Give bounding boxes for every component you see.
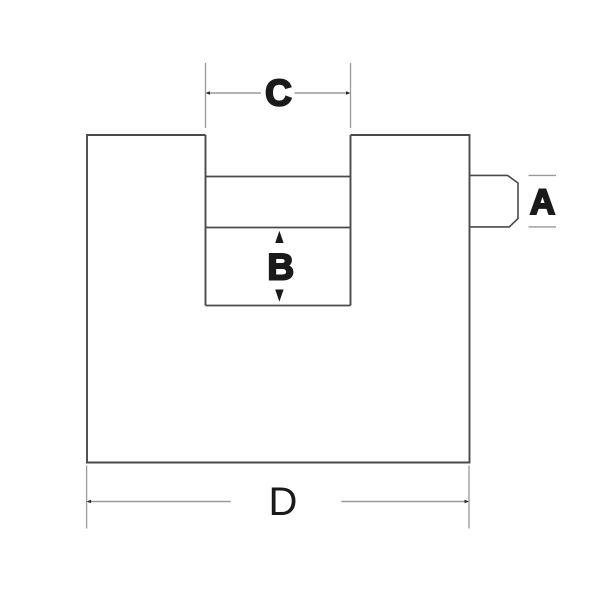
svg-text:B: B — [267, 247, 294, 288]
svg-text:A: A — [530, 183, 555, 222]
svg-text:C: C — [265, 73, 292, 114]
svg-text:D: D — [269, 480, 298, 524]
